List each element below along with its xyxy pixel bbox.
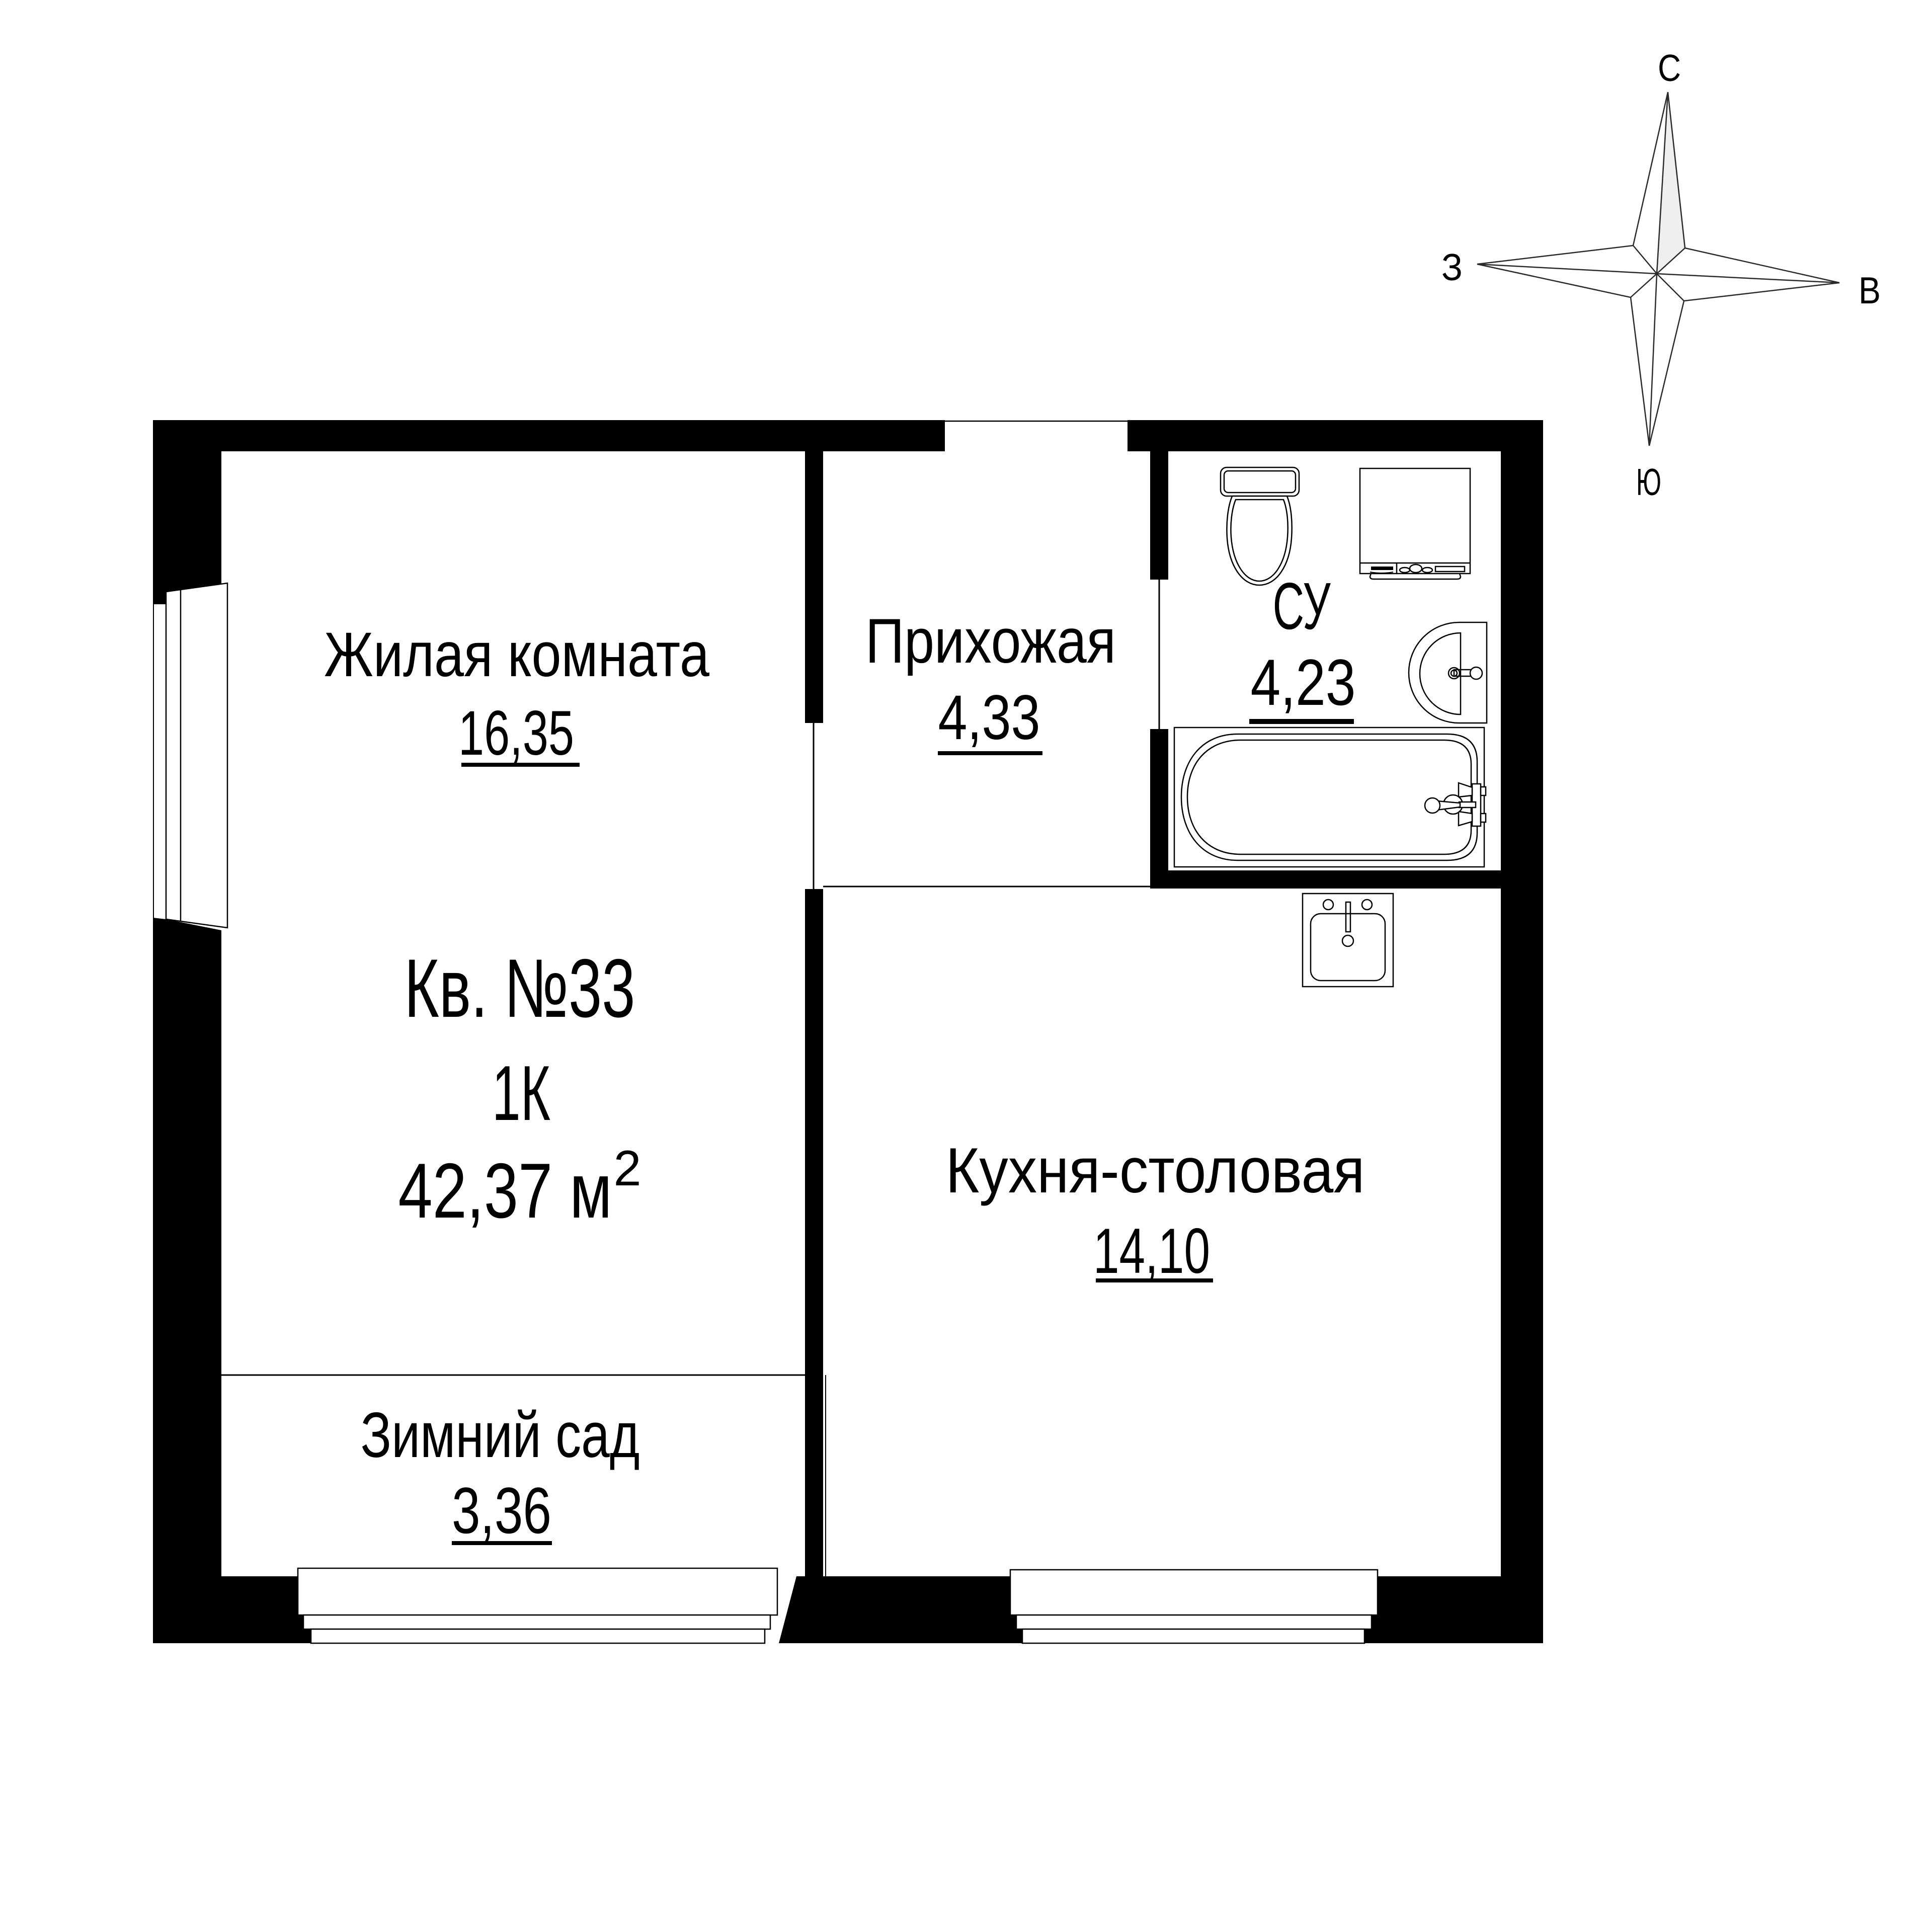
svg-text:Прихожая: Прихожая: [865, 606, 1116, 676]
svg-text:Кухня-столовая: Кухня-столовая: [946, 1135, 1365, 1206]
svg-text:СУ: СУ: [1273, 569, 1331, 643]
svg-text:Кв. №33: Кв. №33: [405, 942, 635, 1034]
svg-text:4,33: 4,33: [938, 683, 1040, 753]
svg-text:1К: 1К: [492, 1050, 550, 1137]
svg-text:Ю: Ю: [1636, 461, 1661, 503]
svg-text:С: С: [1658, 47, 1681, 89]
svg-text:3,36: 3,36: [452, 1474, 551, 1547]
svg-text:14,10: 14,10: [1093, 1215, 1210, 1286]
svg-text:2: 2: [613, 1140, 641, 1196]
svg-text:Зимний сад: Зимний сад: [361, 1399, 640, 1471]
svg-text:Жилая комната: Жилая комната: [324, 620, 709, 690]
svg-text:16,35: 16,35: [458, 698, 574, 768]
svg-text:В: В: [1859, 269, 1881, 311]
svg-text:4,23: 4,23: [1251, 646, 1356, 719]
svg-text:З: З: [1441, 246, 1463, 288]
svg-text:42,37 м: 42,37 м: [398, 1147, 612, 1234]
